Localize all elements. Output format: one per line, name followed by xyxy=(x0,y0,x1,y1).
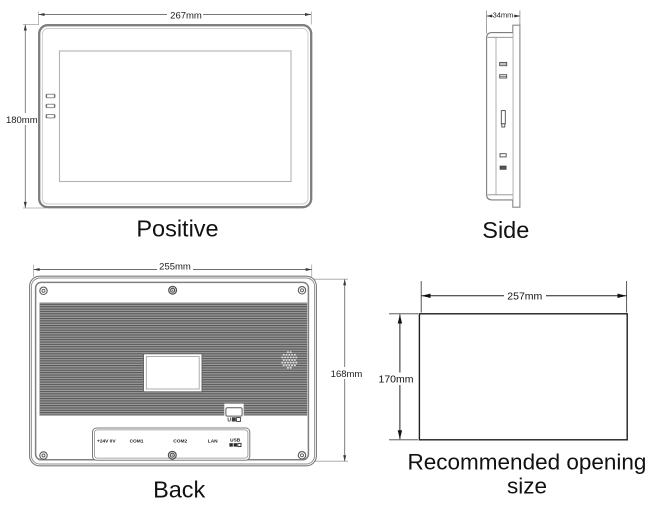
svg-text:Positive: Positive xyxy=(136,216,218,242)
svg-text:255mm: 255mm xyxy=(159,262,191,273)
svg-text:size: size xyxy=(507,474,547,499)
svg-text:USB: USB xyxy=(230,438,241,444)
svg-text:COM1: COM1 xyxy=(130,439,144,445)
svg-text:+24V 0V: +24V 0V xyxy=(97,439,116,445)
svg-text:Back: Back xyxy=(153,477,205,503)
svg-text:168mm: 168mm xyxy=(331,369,363,380)
svg-text:257mm: 257mm xyxy=(507,291,542,303)
svg-text:Recommended opening: Recommended opening xyxy=(408,450,647,475)
svg-text:LAN: LAN xyxy=(208,439,218,445)
svg-text:267mm: 267mm xyxy=(170,10,202,21)
svg-text:34mm: 34mm xyxy=(493,11,514,20)
svg-text:U: U xyxy=(227,418,231,424)
svg-text:170mm: 170mm xyxy=(378,374,413,386)
svg-text:Side: Side xyxy=(482,217,529,243)
svg-text:COM2: COM2 xyxy=(173,439,187,445)
svg-text:180mm: 180mm xyxy=(6,115,38,126)
